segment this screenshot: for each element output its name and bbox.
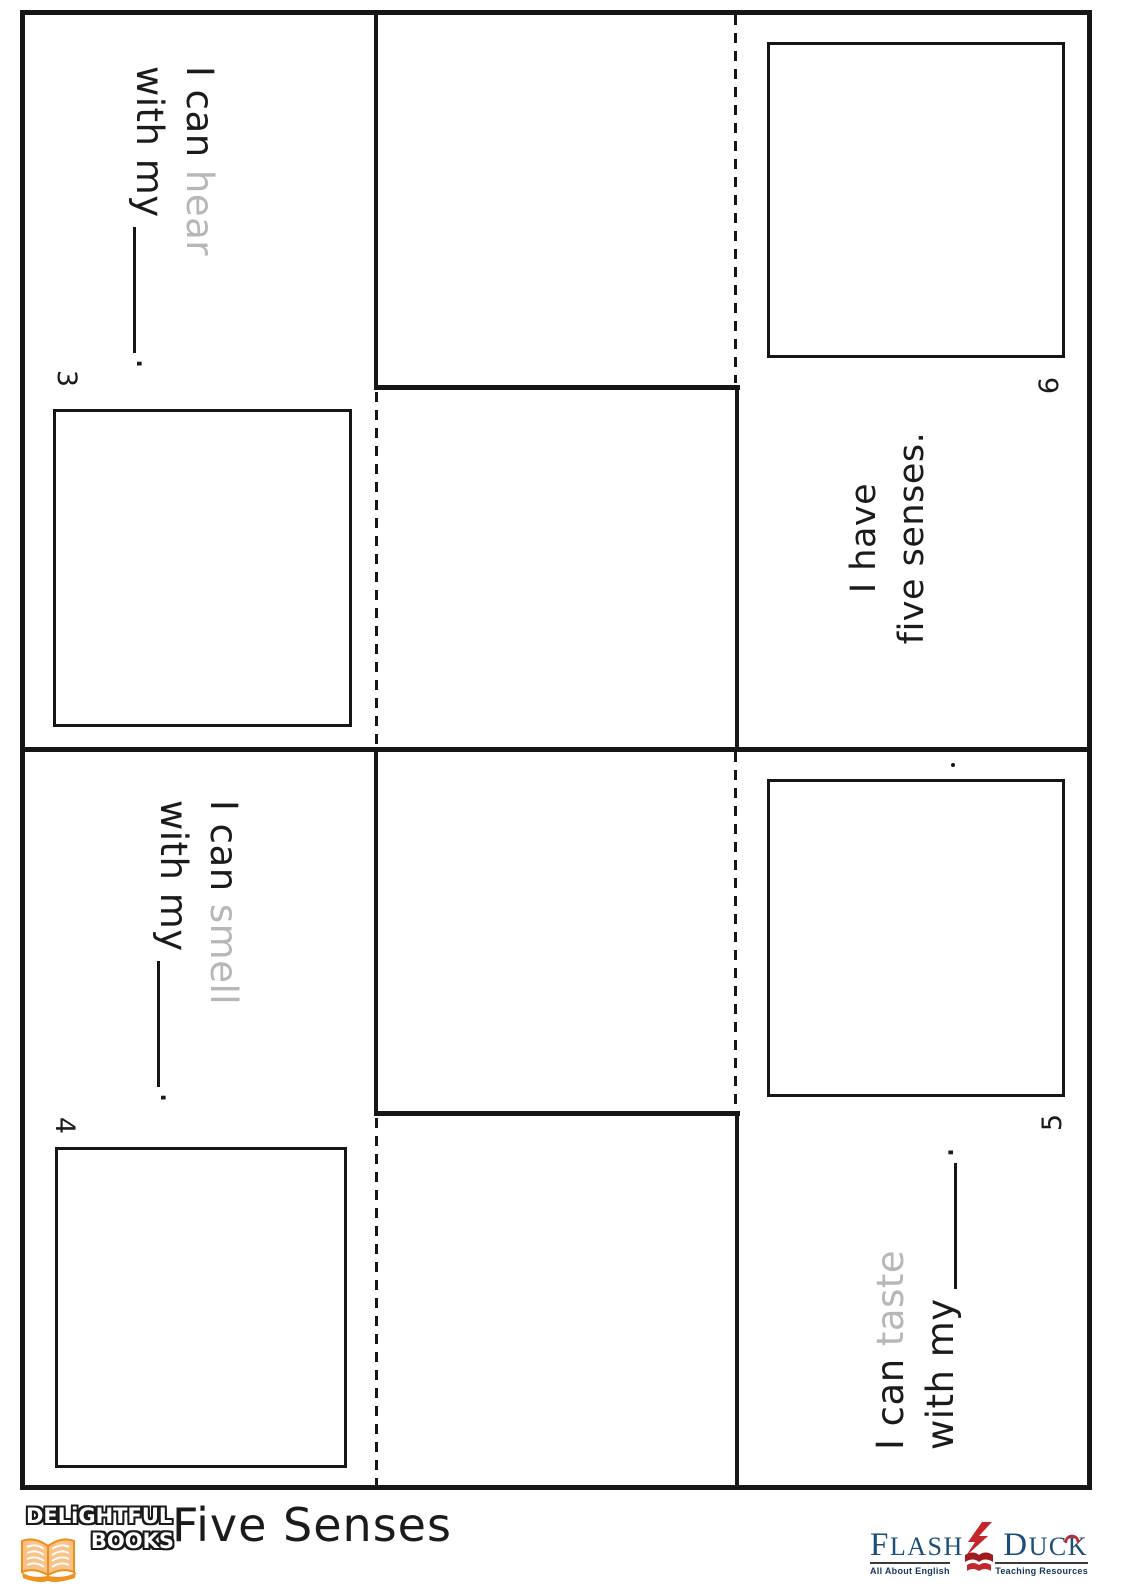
drawing-box-page6: [767, 42, 1065, 358]
page-number-4: 4: [51, 1111, 79, 1139]
page4-line1: I can smell: [198, 800, 248, 1112]
fold-line-bottom-right: [734, 752, 737, 1110]
page6-line2: five senses.: [888, 430, 936, 646]
brand-tagline-left: All About English: [870, 1562, 950, 1576]
fold-line-top-left: [375, 392, 378, 747]
drawing-box-page3: [53, 409, 352, 727]
page3-line2: with my.: [124, 66, 174, 378]
lightning-bolt-icon: [962, 1522, 996, 1566]
drawing-box-page5: [767, 779, 1065, 1097]
worksheet-sheet: I can hear with my. 3 I can smell with m…: [0, 0, 1122, 1584]
page4-line2: with my.: [148, 800, 198, 1112]
page3-sentence: I can hear with my.: [118, 66, 224, 378]
blank-line: [157, 961, 190, 1087]
page5-line1: I can taste: [866, 1138, 916, 1450]
cut-line-bottom-horizontal: [374, 1111, 740, 1116]
page6-line1: I have: [840, 430, 888, 646]
page6-sentence: I have five senses.: [840, 430, 940, 646]
brand-logo: FLASH DUCK All About English Teaching Re…: [870, 1528, 1088, 1576]
page5-line2: with my.: [916, 1138, 966, 1450]
middle-cut-line: [20, 747, 1092, 752]
trace-word-hear: hear: [178, 170, 221, 256]
page4-sentence: I can smell with my.: [138, 800, 248, 1112]
brand-name-flash: FLASH: [870, 1532, 964, 1560]
blank-line: [924, 1163, 957, 1289]
brand-tagline-right: Teaching Resources: [995, 1562, 1088, 1576]
fold-line-bottom-left: [375, 1118, 378, 1485]
duck-swoosh-icon: [1063, 1530, 1081, 1548]
cut-line-bottom-left-vertical: [374, 752, 378, 1116]
trace-word-smell: smell: [202, 904, 245, 1005]
small-book-icon: [966, 1561, 992, 1574]
trace-word-taste: taste: [869, 1250, 912, 1346]
page3-line1: I can hear: [174, 66, 224, 378]
cut-line-bottom-right-vertical: [735, 1111, 739, 1485]
page-number-3: 3: [53, 364, 81, 392]
publisher-logo: DELiGHTFUL BOOKS: [16, 1500, 176, 1580]
page-number-6: 6: [1036, 371, 1064, 399]
print-dot-artifact: [951, 763, 955, 767]
drawing-box-page4: [55, 1147, 347, 1468]
publisher-name-line1: DELiGHTFUL: [26, 1504, 174, 1528]
page5-sentence: I can taste with my.: [866, 1138, 968, 1450]
fold-line-top-right: [734, 15, 737, 383]
cut-line-top-left-vertical: [374, 10, 378, 389]
publisher-name-line2: BOOKS: [26, 1529, 174, 1553]
cut-line-top-right-vertical: [735, 385, 739, 747]
worksheet-title: Five Senses: [172, 1498, 452, 1552]
page-number-5: 5: [1039, 1108, 1067, 1136]
blank-line: [133, 227, 166, 353]
cut-line-top-horizontal: [374, 385, 740, 390]
